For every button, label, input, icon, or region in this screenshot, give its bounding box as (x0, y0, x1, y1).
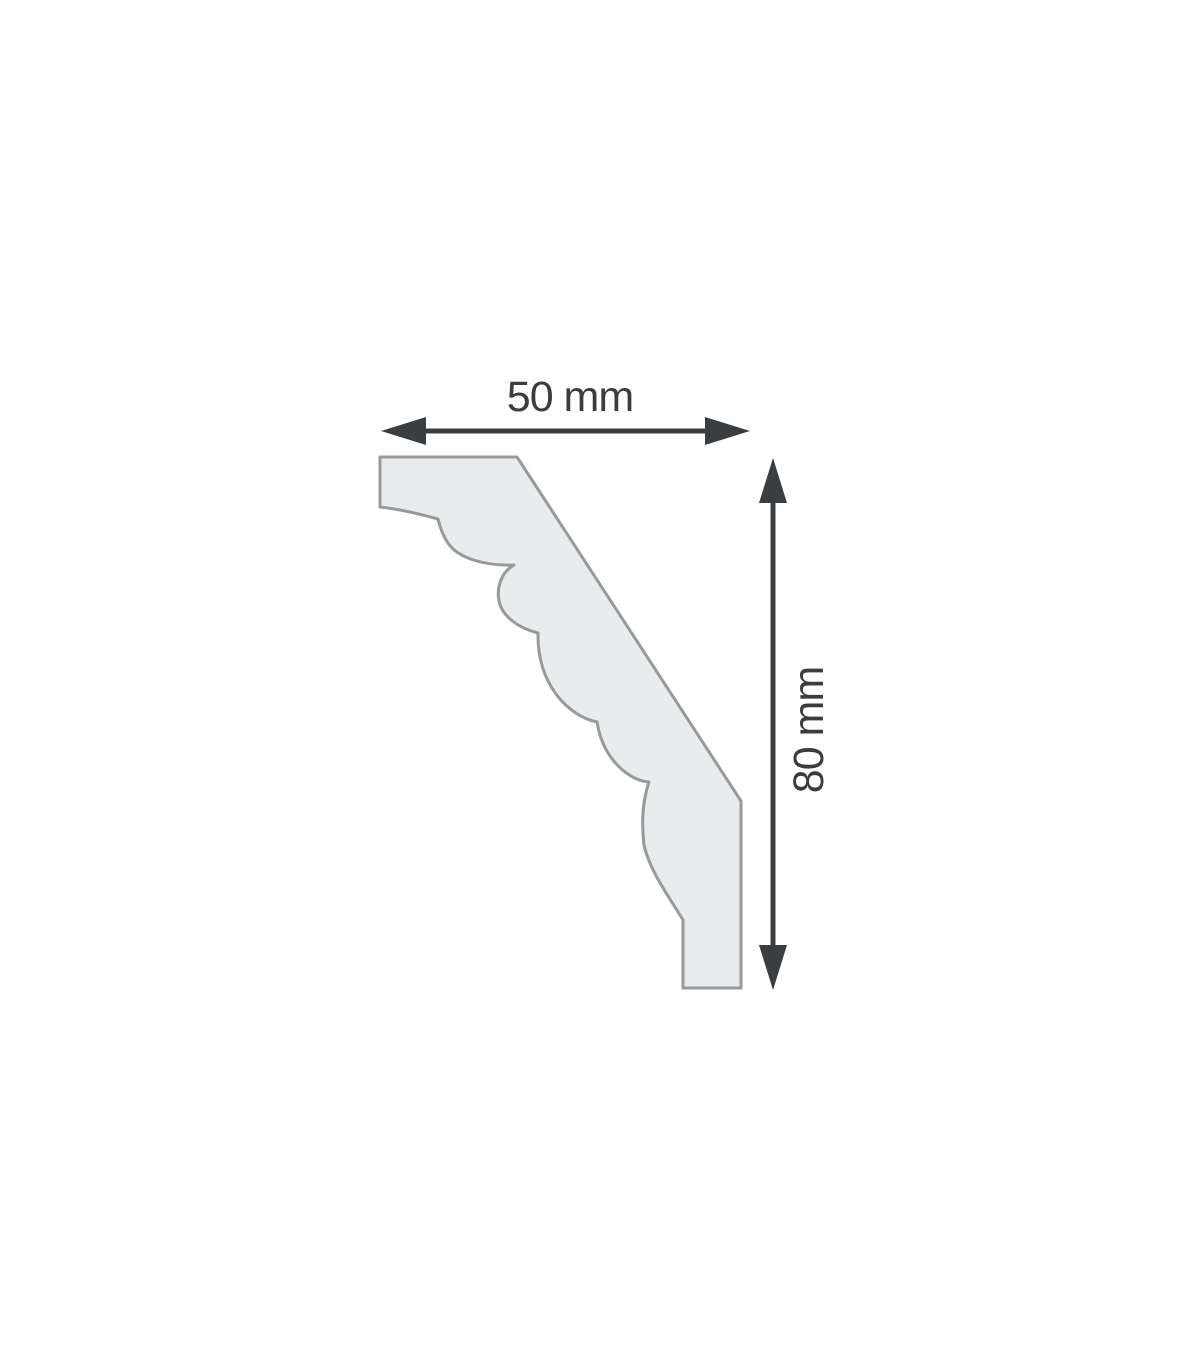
height-dimension: 80 mm (759, 458, 833, 990)
width-dimension: 50 mm (381, 373, 750, 445)
height-dimension-label: 80 mm (785, 667, 833, 793)
molding-profile-shape (380, 457, 741, 988)
profile-dimension-diagram: 50 mm 80 mm (0, 0, 1200, 1372)
arrowhead-up-icon (759, 458, 787, 503)
arrowhead-down-icon (759, 945, 787, 990)
arrowhead-right-icon (705, 417, 750, 445)
drawing-canvas: 50 mm 80 mm (0, 0, 1200, 1372)
arrowhead-left-icon (381, 417, 426, 445)
width-dimension-label: 50 mm (507, 373, 633, 421)
